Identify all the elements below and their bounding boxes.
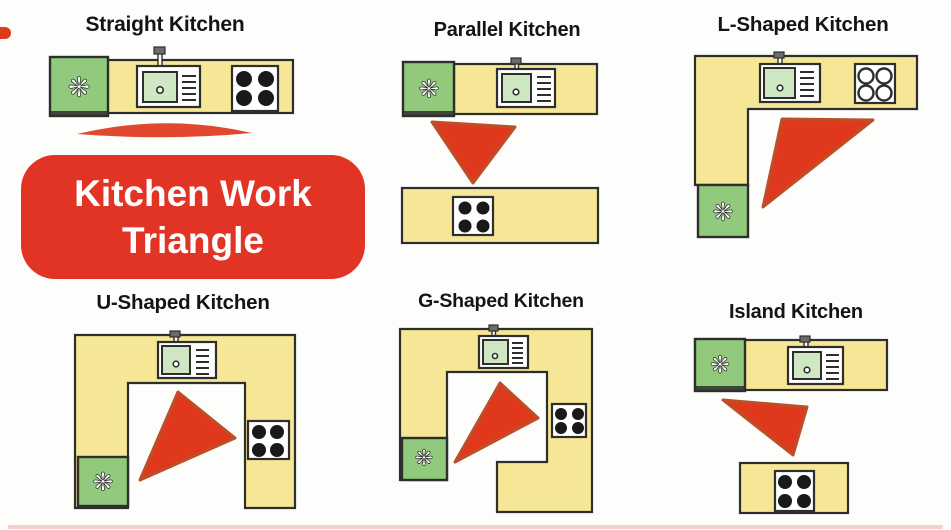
l-shaped-kitchen-diagram: ❋ xyxy=(695,52,917,237)
straight-sink xyxy=(137,47,200,107)
u-stove xyxy=(248,421,289,459)
straight-kitchen-diagram: ❋ xyxy=(50,47,293,137)
fridge-fan-icon: ❋ xyxy=(713,198,734,227)
parallel-fridge: ❋ xyxy=(403,62,454,116)
straight-stove xyxy=(232,66,278,111)
g-shaped-kitchen-diagram: ❋ xyxy=(400,325,592,512)
faucet-icon xyxy=(170,331,180,337)
u-fridge: ❋ xyxy=(78,457,128,506)
straight-fridge: ❋ xyxy=(50,57,108,116)
faucet-icon xyxy=(800,336,810,342)
l-work-triangle xyxy=(763,119,873,207)
parallel-bottom-counter xyxy=(402,188,598,243)
parallel-kitchen-diagram: ❋ xyxy=(402,58,598,243)
faucet-icon xyxy=(489,325,498,331)
bottom-pink-strip xyxy=(8,525,943,529)
parallel-stove xyxy=(453,197,493,235)
island-work-triangle xyxy=(723,400,807,455)
faucet-icon xyxy=(511,58,521,64)
g-work-triangle xyxy=(455,383,538,462)
faucet-icon xyxy=(774,52,784,58)
kitchen-diagrams: ❋ xyxy=(0,0,951,530)
faucet-icon xyxy=(154,47,165,54)
parallel-work-triangle xyxy=(432,122,515,183)
l-stove xyxy=(855,64,895,103)
u-shaped-kitchen-diagram: ❋ xyxy=(75,331,295,508)
g-fridge: ❋ xyxy=(402,438,447,480)
fridge-fan-icon: ❋ xyxy=(93,468,114,497)
fridge-fan-icon: ❋ xyxy=(710,351,730,379)
island-stove xyxy=(775,471,814,511)
straight-work-triangle xyxy=(77,123,252,137)
island-kitchen-diagram: ❋ xyxy=(695,336,887,513)
g-stove xyxy=(552,404,586,437)
island-fridge: ❋ xyxy=(695,339,745,391)
fridge-fan-icon: ❋ xyxy=(419,75,440,104)
fridge-fan-icon: ❋ xyxy=(415,447,433,472)
kitchen-work-triangle-infographic: Straight Kitchen Parallel Kitchen L-Shap… xyxy=(0,0,951,530)
l-fridge: ❋ xyxy=(698,185,748,237)
fridge-fan-icon: ❋ xyxy=(68,73,91,104)
u-work-triangle xyxy=(140,392,235,480)
